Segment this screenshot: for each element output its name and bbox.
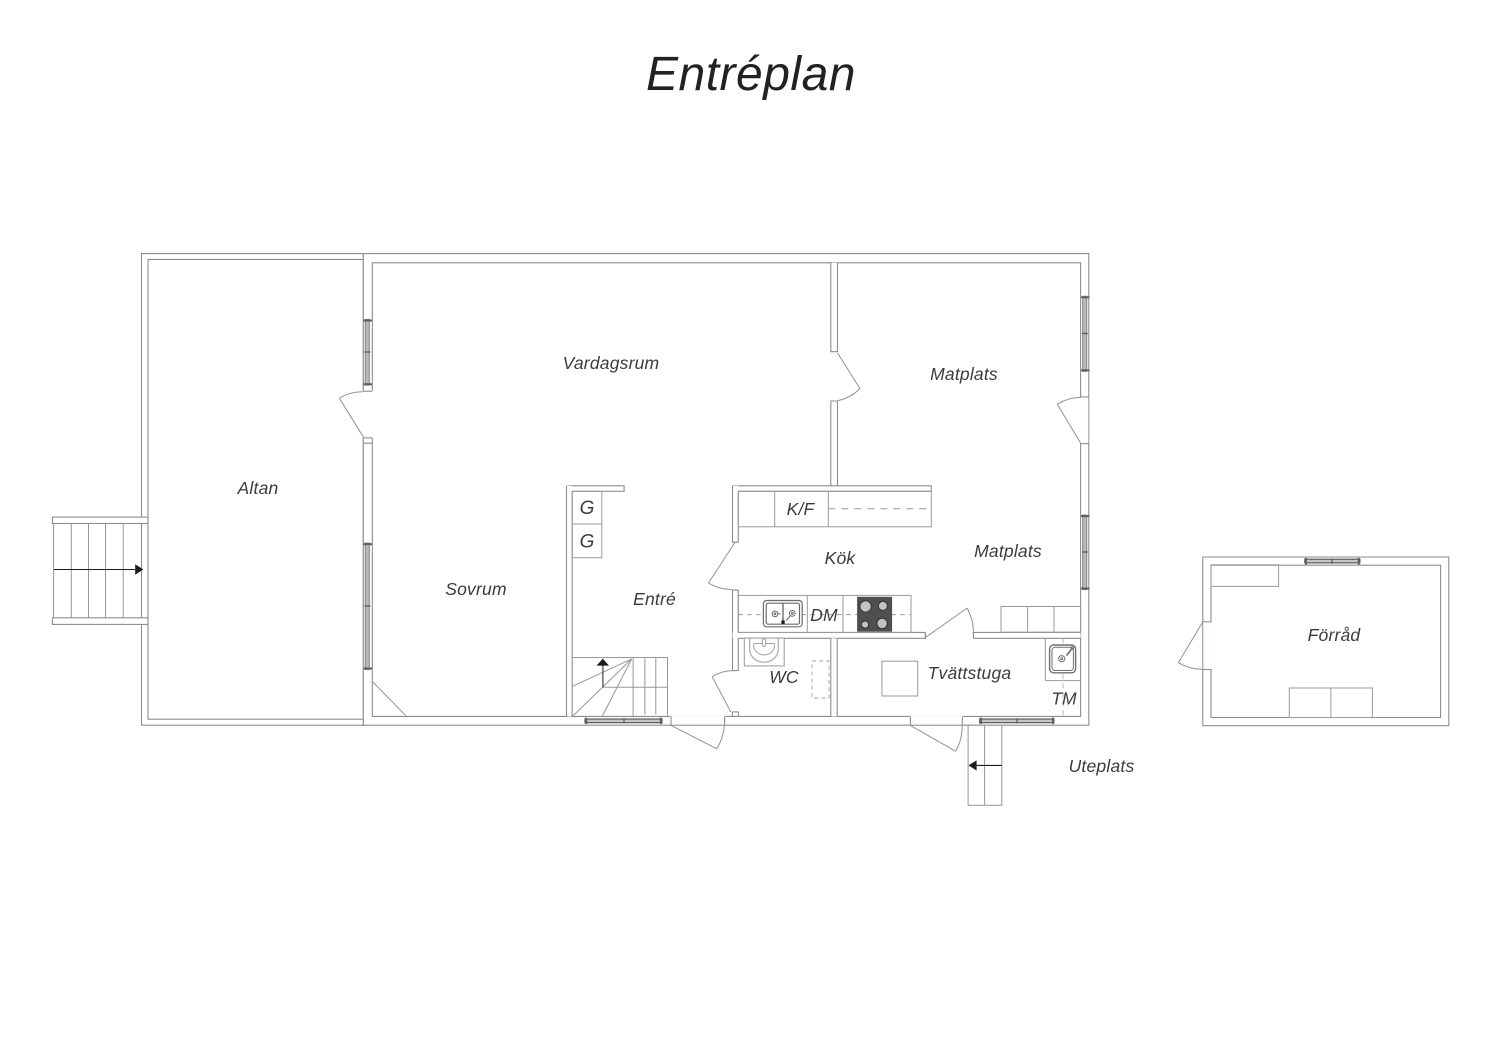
- svg-text:Matplats: Matplats: [974, 541, 1042, 561]
- svg-text:K/F: K/F: [787, 499, 816, 519]
- svg-text:Altan: Altan: [237, 478, 279, 498]
- svg-text:Kök: Kök: [825, 548, 857, 568]
- svg-text:G: G: [580, 498, 595, 519]
- svg-text:Tvättstuga: Tvättstuga: [928, 663, 1012, 683]
- svg-text:Sovrum: Sovrum: [445, 579, 507, 599]
- svg-text:G: G: [580, 532, 595, 553]
- svg-text:Vardagsrum: Vardagsrum: [563, 353, 660, 373]
- svg-text:TM: TM: [1051, 689, 1077, 709]
- svg-text:WC: WC: [769, 667, 799, 687]
- svg-text:DM: DM: [810, 605, 838, 625]
- svg-text:Uteplats: Uteplats: [1069, 756, 1135, 776]
- svg-text:Förråd: Förråd: [1308, 625, 1362, 645]
- svg-text:Entréplan: Entréplan: [646, 48, 856, 101]
- svg-text:Entré: Entré: [633, 589, 676, 609]
- svg-text:Matplats: Matplats: [930, 364, 998, 384]
